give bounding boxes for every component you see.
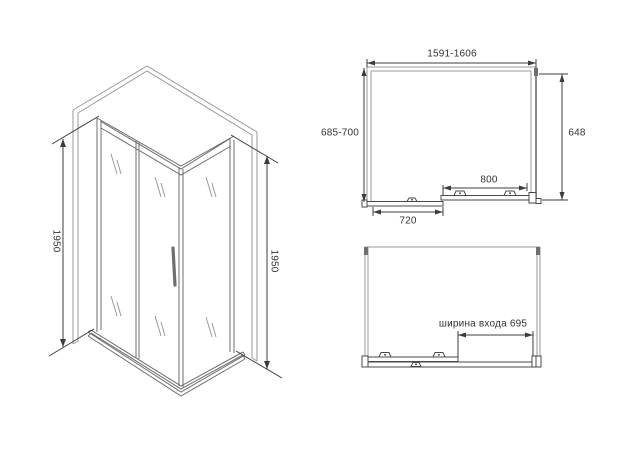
dimension-entrance [458, 331, 533, 357]
technical-drawing: 1950 1950 1591-1606 685-700 648 800 720 … [0, 0, 640, 453]
label-plan-width: 1591-1606 [427, 49, 477, 60]
label-door-width: 800 [480, 175, 497, 186]
label-entrance-width: ширина входа 695 [439, 319, 527, 330]
open-end-block-left [362, 356, 368, 367]
door-roller-left-dot [459, 192, 461, 194]
plan-view-open [362, 247, 541, 367]
dimension-plan-width [367, 59, 536, 67]
rail-clip-dot [411, 199, 413, 201]
door-roller-right-dot [509, 192, 511, 194]
isometric-view [49, 66, 282, 396]
open-wall-anchor-right [536, 247, 540, 255]
dimension-plan-depth [362, 68, 367, 202]
drawing-canvas [0, 0, 640, 453]
plan-outline [367, 67, 536, 202]
open-door-roller-right-dot [438, 354, 440, 356]
fixed-panel-bar [365, 202, 443, 207]
dimension-side-panel [539, 74, 568, 200]
glass-sparkles [111, 154, 216, 337]
door-handle [173, 248, 175, 285]
label-side-panel: 648 [568, 128, 585, 139]
corner-profile-foot [536, 199, 541, 204]
label-plan-depth: 685-700 [321, 128, 359, 139]
plan-wall-anchor [534, 68, 538, 76]
open-wall-anchor-left [364, 247, 368, 255]
label-height-left: 1950 [51, 229, 62, 252]
sliding-door-bar [441, 196, 530, 201]
corner-profile-block [529, 193, 536, 204]
bottom-track [88, 330, 245, 396]
open-rail-clip-dot [415, 363, 417, 365]
label-height-right: 1950 [269, 249, 280, 272]
open-door-roller-left-dot [384, 354, 386, 356]
open-door-bar [366, 357, 458, 362]
label-fixed-width: 720 [399, 216, 416, 227]
plan-view-closed [362, 59, 569, 216]
open-outline [365, 247, 540, 362]
open-bottom-rail [364, 362, 541, 367]
